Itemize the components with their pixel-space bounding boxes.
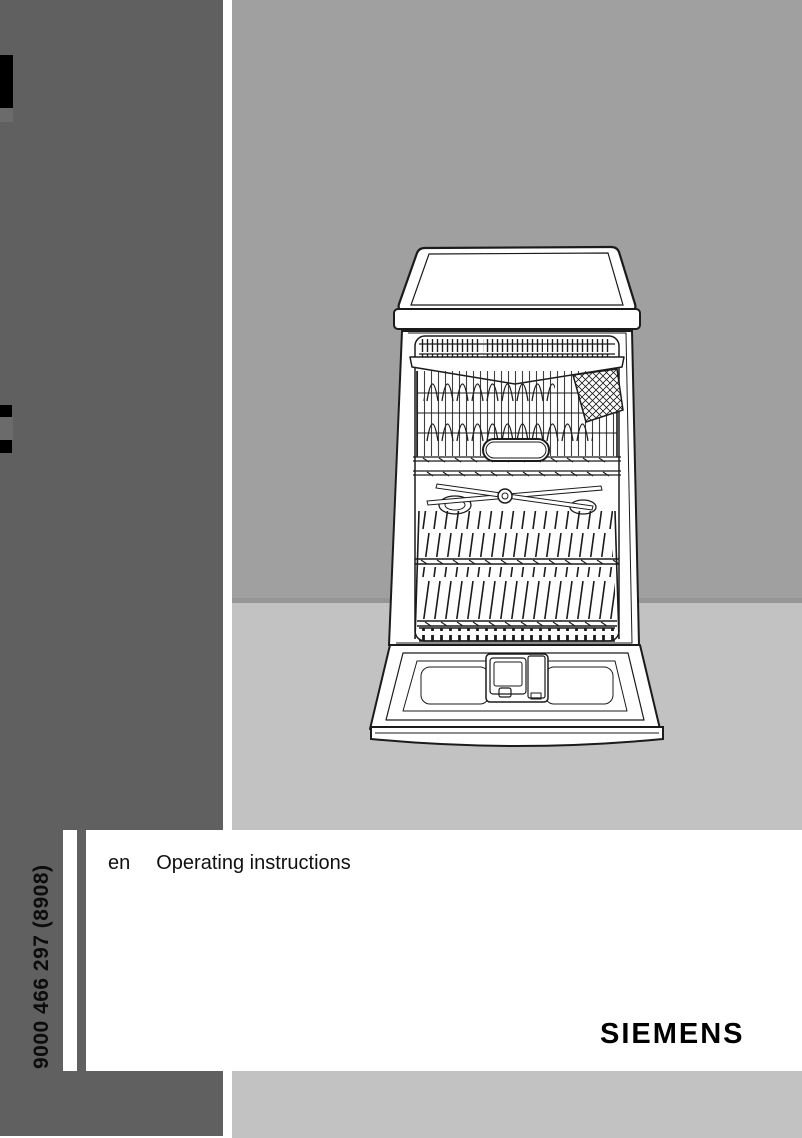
brand-logo: SIEMENS xyxy=(600,1018,745,1051)
title-row: en Operating instructions xyxy=(108,850,351,877)
footer-bar xyxy=(232,1071,802,1138)
manual-cover-page: { "cover": { "order_code": "9000 466 297… xyxy=(0,0,802,1138)
thumb-tab-ghost xyxy=(0,417,13,440)
lower-basket xyxy=(415,511,619,641)
thumb-tab-icon xyxy=(0,440,12,453)
document-title: Operating instructions xyxy=(156,850,351,877)
thumb-tab-icon xyxy=(0,405,12,417)
thumb-tab-icon xyxy=(0,55,13,108)
thumb-tab-ghost xyxy=(0,108,13,122)
worktop xyxy=(394,247,640,329)
order-code-vertical: 9000 466 297 (8908) xyxy=(30,864,53,1069)
title-band: en Operating instructions SIEMENS xyxy=(86,830,802,1071)
spine-white-bar xyxy=(63,830,77,1071)
illustration-panel xyxy=(232,0,802,830)
detergent-dispenser xyxy=(486,654,548,702)
dishwasher-door xyxy=(370,645,660,729)
language-code: en xyxy=(108,850,130,877)
door-bottom-edge xyxy=(371,727,663,746)
dishwasher-illustration xyxy=(365,243,665,753)
